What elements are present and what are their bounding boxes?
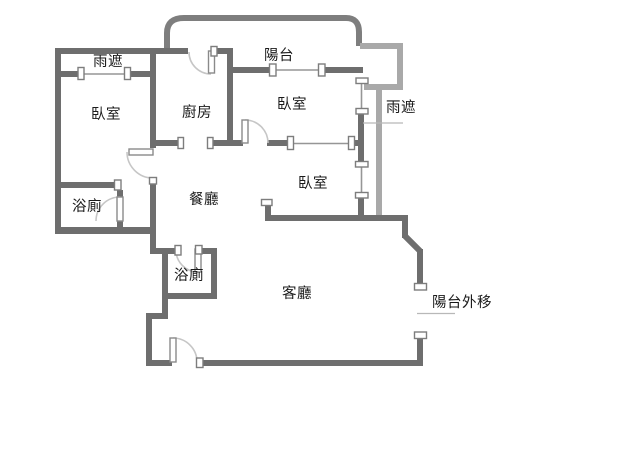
bedroom-left-door-leaf	[129, 149, 153, 155]
wall-end-cap	[356, 162, 369, 168]
wall-end-cap	[319, 64, 326, 76]
bedroom-top-door-leaf	[242, 120, 248, 143]
floorplan-canvas: 雨遮 臥室 廚房 陽台 臥室 雨遮 臥室 浴廁 餐廳 浴廁 客廳 陽台外移	[0, 0, 638, 460]
canopy-walls	[360, 43, 403, 218]
wall-segment	[117, 190, 123, 197]
wall-end-cap	[175, 246, 181, 256]
wall-segment	[55, 48, 61, 234]
entrance-door-leaf	[170, 338, 176, 362]
wall-end-cap	[288, 137, 294, 150]
wall-end-cap	[415, 284, 427, 291]
wall-segment	[146, 315, 152, 366]
wall-end-cap	[150, 178, 157, 185]
wall-segment	[364, 84, 397, 90]
label-canopy-right: 雨遮	[386, 99, 416, 116]
bath-upper-door-leaf	[117, 197, 123, 221]
wall-segment	[199, 360, 423, 366]
wall-segment	[217, 48, 233, 54]
label-bedroom-top: 臥室	[277, 96, 307, 113]
wall-end-cap	[196, 246, 203, 255]
wall-end-cap	[125, 68, 131, 80]
label-bath-upper: 浴廁	[72, 197, 102, 215]
wall-segment	[57, 182, 115, 188]
wall-end-cap	[415, 332, 427, 339]
wall-end-cap	[115, 180, 122, 190]
wall-segment	[211, 248, 217, 299]
wall-segment	[150, 54, 156, 148]
wall-end-caps	[78, 47, 427, 368]
wall-segment	[150, 179, 156, 254]
wall-end-cap	[349, 137, 355, 150]
wall-segment	[267, 140, 288, 146]
label-canopy-left: 雨遮	[93, 53, 123, 70]
wall-segment	[405, 236, 420, 251]
wall-segment	[162, 293, 217, 299]
label-bath-lower: 浴廁	[174, 266, 204, 284]
wall-segment	[227, 54, 233, 146]
wall-segment	[397, 49, 403, 90]
balcony-outer-curved-wall	[167, 18, 359, 51]
wall-segment	[360, 43, 403, 49]
wall-end-cap	[78, 68, 84, 80]
label-balcony-extension: 陽台外移	[432, 294, 492, 311]
wall-segment	[417, 338, 423, 363]
wall-end-cap	[178, 138, 184, 149]
wall-end-cap	[197, 358, 204, 368]
wall-segment	[55, 227, 156, 234]
label-bedroom-left: 臥室	[91, 106, 121, 123]
wall-segment	[167, 18, 359, 51]
wall-segment	[117, 221, 123, 231]
wall-end-cap	[356, 193, 369, 199]
wall-segment	[376, 90, 382, 218]
kitchen-balcony-door-arc	[189, 52, 211, 74]
wall-segment	[358, 113, 364, 162]
label-kitchen: 廚房	[182, 103, 212, 121]
wall-end-cap	[262, 200, 273, 206]
window-lines	[84, 70, 362, 193]
wall-segment	[265, 215, 408, 221]
wall-segment	[325, 67, 363, 73]
wall-end-cap	[356, 78, 368, 84]
room-labels: 雨遮 臥室 廚房 陽台 臥室 雨遮 臥室 浴廁 餐廳 浴廁 客廳 陽台外移	[72, 47, 492, 311]
wall-end-cap	[208, 138, 214, 149]
label-balcony: 陽台	[264, 47, 294, 64]
label-dining: 餐廳	[189, 190, 219, 208]
wall-end-cap	[270, 64, 277, 76]
wall-segment	[156, 140, 179, 146]
wall-segment	[162, 251, 168, 319]
bedroom-left-door-arc	[127, 152, 153, 178]
wall-segment	[417, 249, 423, 286]
wall-segment	[61, 71, 79, 77]
wall-end-cap	[356, 109, 368, 115]
wall-segment	[233, 67, 270, 73]
floorplan-svg: 雨遮 臥室 廚房 陽台 臥室 雨遮 臥室 浴廁 餐廳 浴廁 客廳 陽台外移	[0, 0, 638, 460]
label-living: 客廳	[282, 284, 312, 302]
label-bedroom-mid: 臥室	[298, 175, 328, 192]
walls	[55, 48, 423, 366]
wall-end-cap	[211, 47, 217, 57]
wall-segment	[265, 206, 271, 215]
